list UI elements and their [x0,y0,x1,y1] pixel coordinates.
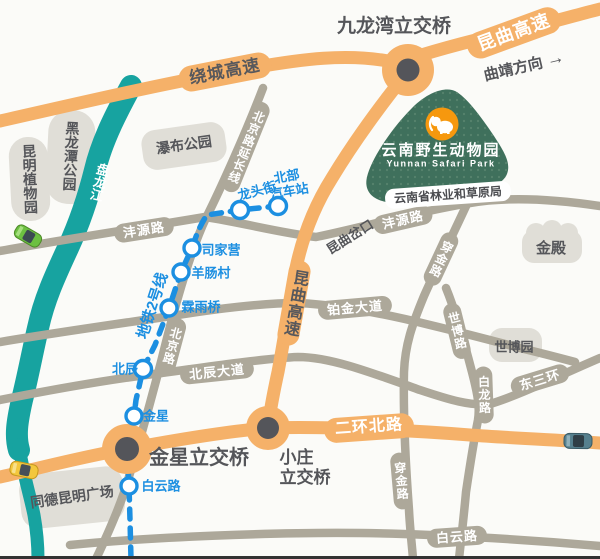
jiulongwan-interchange [382,44,434,96]
station-baiyunlu [121,478,137,494]
jinxing-interchange-label: 金星立交桥 [149,447,249,471]
erhuan-north-east-path [268,428,600,443]
station-linyuqiao-label: 霖雨桥 [181,299,220,314]
safari-park-name-cn: 云南野生动物园 [381,142,500,160]
station-baiyunlu-label: 白云路 [141,478,180,493]
xiaozhuang-line1: 小庄 [280,448,331,468]
safari-park-name-en: Yunnan Safari Park [386,159,495,170]
car-teal-icon [564,433,592,448]
expo-garden-label: 世博园 [494,339,533,354]
xiaozhuang-interchange [246,406,290,450]
jiulongwan-interchange-label: 九龙湾立交桥 [337,16,451,38]
station-jinxing [126,408,142,424]
kunming-safari-park-map: 绕城高速 九龙湾立交桥 昆曲高速 曲靖方向 → 昆曲高速 二环北路 金星立交桥 … [0,0,600,559]
station-beichen-label: 北辰 [112,361,138,376]
station-sijiaying-label: 司家营 [201,242,240,257]
bailong-road-label: 白龙路 [474,366,494,424]
station-yangchangcun-label: 羊肠村 [191,265,230,280]
station-longtoujie [232,202,249,219]
jinxing-interchange [102,424,152,474]
baiyun-road-path [70,533,600,546]
station-yangchangcun [173,264,189,280]
beichen-dongsanhuan-path [0,357,600,404]
botanical-garden-label: 昆明植物园 [18,135,41,224]
station-sijiaying [184,240,200,256]
safari-park-logo [426,108,459,141]
xiaozhuang-line2: 立交桥 [280,468,331,488]
golden-temple-label: 金殿 [536,240,566,258]
station-jinxing-label: 金星 [143,408,169,423]
xiaozhuang-interchange-label: 小庄 立交桥 [280,448,331,488]
